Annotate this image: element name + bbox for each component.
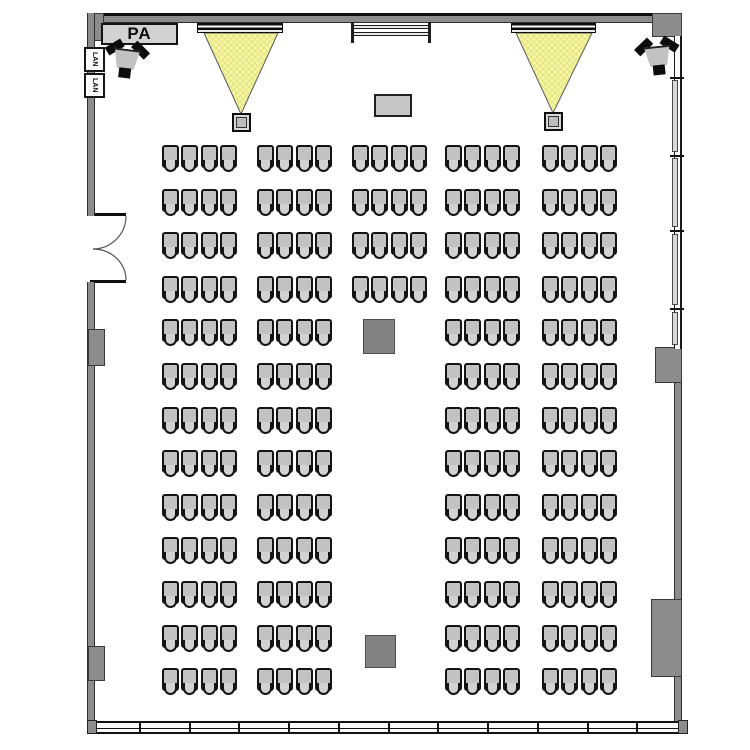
- chair-icon: [296, 494, 313, 521]
- chair-icon: [561, 625, 578, 652]
- seat-group-far-right-row-7: [542, 407, 617, 434]
- seat-group-far-left-row-13: [162, 668, 237, 695]
- chair-icon: [296, 363, 313, 390]
- chair-icon: [315, 276, 332, 303]
- seating-area: [0, 0, 750, 750]
- chair-icon: [561, 189, 578, 216]
- chair-icon: [503, 494, 520, 521]
- seat-group-center-row-2: [352, 189, 427, 216]
- chair-icon: [181, 494, 198, 521]
- seat-group-mid-left-row-2: [257, 189, 332, 216]
- chair-icon: [315, 625, 332, 652]
- chair-icon: [542, 189, 559, 216]
- chair-icon: [162, 232, 179, 259]
- chair-icon: [352, 145, 369, 172]
- chair-icon: [464, 668, 481, 695]
- chair-icon: [296, 276, 313, 303]
- chair-icon: [315, 232, 332, 259]
- chair-icon: [542, 537, 559, 564]
- chair-icon: [315, 145, 332, 172]
- chair-icon: [542, 668, 559, 695]
- chair-icon: [542, 581, 559, 608]
- chair-icon: [600, 494, 617, 521]
- chair-icon: [503, 450, 520, 477]
- chair-icon: [464, 319, 481, 346]
- chair-icon: [561, 537, 578, 564]
- chair-icon: [162, 450, 179, 477]
- chair-icon: [503, 276, 520, 303]
- chair-icon: [484, 232, 501, 259]
- chair-icon: [503, 581, 520, 608]
- chair-icon: [445, 189, 462, 216]
- chair-icon: [600, 537, 617, 564]
- chair-icon: [201, 407, 218, 434]
- chair-icon: [410, 189, 427, 216]
- chair-icon: [581, 450, 598, 477]
- seat-group-far-right-row-6: [542, 363, 617, 390]
- chair-icon: [581, 537, 598, 564]
- chair-icon: [371, 189, 388, 216]
- chair-icon: [257, 581, 274, 608]
- chair-icon: [445, 407, 462, 434]
- chair-icon: [181, 450, 198, 477]
- seat-group-center-row-3: [352, 232, 427, 259]
- seat-group-mid-left-row-3: [257, 232, 332, 259]
- seat-group-mid-right-row-11: [445, 581, 520, 608]
- chair-icon: [220, 537, 237, 564]
- seat-group-mid-left-row-12: [257, 625, 332, 652]
- chair-icon: [162, 363, 179, 390]
- chair-icon: [315, 450, 332, 477]
- chair-icon: [315, 581, 332, 608]
- chair-icon: [220, 494, 237, 521]
- chair-icon: [371, 276, 388, 303]
- seat-group-mid-right-row-13: [445, 668, 520, 695]
- chair-icon: [162, 319, 179, 346]
- chair-icon: [181, 363, 198, 390]
- seat-group-far-right-row-3: [542, 232, 617, 259]
- chair-icon: [276, 363, 293, 390]
- seat-group-mid-left-row-7: [257, 407, 332, 434]
- chair-icon: [561, 450, 578, 477]
- chair-icon: [201, 145, 218, 172]
- seat-group-far-right-row-2: [542, 189, 617, 216]
- chair-icon: [410, 145, 427, 172]
- chair-icon: [162, 537, 179, 564]
- chair-icon: [600, 319, 617, 346]
- chair-icon: [503, 625, 520, 652]
- chair-icon: [581, 232, 598, 259]
- chair-icon: [315, 363, 332, 390]
- chair-icon: [445, 319, 462, 346]
- chair-icon: [352, 276, 369, 303]
- chair-icon: [315, 537, 332, 564]
- chair-icon: [201, 581, 218, 608]
- chair-icon: [201, 450, 218, 477]
- chair-icon: [162, 581, 179, 608]
- chair-icon: [220, 189, 237, 216]
- chair-icon: [162, 145, 179, 172]
- chair-icon: [315, 494, 332, 521]
- chair-icon: [391, 276, 408, 303]
- chair-icon: [600, 450, 617, 477]
- chair-icon: [561, 145, 578, 172]
- chair-icon: [276, 494, 293, 521]
- chair-icon: [561, 363, 578, 390]
- chair-icon: [600, 276, 617, 303]
- seat-group-mid-right-row-7: [445, 407, 520, 434]
- chair-icon: [445, 363, 462, 390]
- chair-icon: [464, 189, 481, 216]
- seat-group-mid-left-row-13: [257, 668, 332, 695]
- seat-group-far-right-row-4: [542, 276, 617, 303]
- chair-icon: [201, 189, 218, 216]
- chair-icon: [464, 494, 481, 521]
- chair-icon: [220, 450, 237, 477]
- chair-icon: [201, 276, 218, 303]
- chair-icon: [296, 319, 313, 346]
- chair-icon: [162, 668, 179, 695]
- chair-icon: [542, 407, 559, 434]
- chair-icon: [503, 668, 520, 695]
- chair-icon: [503, 189, 520, 216]
- chair-icon: [296, 537, 313, 564]
- chair-icon: [371, 145, 388, 172]
- chair-icon: [296, 450, 313, 477]
- chair-icon: [201, 319, 218, 346]
- chair-icon: [484, 189, 501, 216]
- chair-icon: [257, 319, 274, 346]
- chair-icon: [600, 232, 617, 259]
- seat-group-far-right-row-11: [542, 581, 617, 608]
- chair-icon: [181, 581, 198, 608]
- chair-icon: [464, 537, 481, 564]
- chair-icon: [181, 407, 198, 434]
- chair-icon: [445, 668, 462, 695]
- chair-icon: [561, 494, 578, 521]
- chair-icon: [484, 407, 501, 434]
- chair-icon: [410, 276, 427, 303]
- chair-icon: [296, 581, 313, 608]
- chair-icon: [296, 232, 313, 259]
- chair-icon: [201, 494, 218, 521]
- chair-icon: [257, 494, 274, 521]
- chair-icon: [484, 319, 501, 346]
- chair-icon: [352, 232, 369, 259]
- chair-icon: [484, 581, 501, 608]
- chair-icon: [276, 625, 293, 652]
- chair-icon: [581, 668, 598, 695]
- chair-icon: [162, 625, 179, 652]
- chair-icon: [201, 363, 218, 390]
- chair-icon: [257, 276, 274, 303]
- chair-icon: [276, 276, 293, 303]
- chair-icon: [464, 276, 481, 303]
- chair-icon: [484, 145, 501, 172]
- chair-icon: [503, 537, 520, 564]
- chair-icon: [391, 232, 408, 259]
- seat-group-mid-right-row-12: [445, 625, 520, 652]
- chair-icon: [220, 581, 237, 608]
- chair-icon: [484, 276, 501, 303]
- chair-icon: [581, 581, 598, 608]
- chair-icon: [561, 319, 578, 346]
- chair-icon: [276, 232, 293, 259]
- chair-icon: [391, 189, 408, 216]
- chair-icon: [484, 537, 501, 564]
- chair-icon: [484, 450, 501, 477]
- seat-group-mid-right-row-8: [445, 450, 520, 477]
- chair-icon: [464, 450, 481, 477]
- seat-group-far-right-row-10: [542, 537, 617, 564]
- seat-group-center-row-4: [352, 276, 427, 303]
- seat-group-far-right-row-9: [542, 494, 617, 521]
- chair-icon: [464, 581, 481, 608]
- chair-icon: [561, 407, 578, 434]
- chair-icon: [503, 407, 520, 434]
- chair-icon: [220, 668, 237, 695]
- chair-icon: [445, 537, 462, 564]
- chair-icon: [162, 189, 179, 216]
- chair-icon: [484, 494, 501, 521]
- chair-icon: [542, 319, 559, 346]
- seat-group-far-right-row-13: [542, 668, 617, 695]
- seat-group-far-right-row-8: [542, 450, 617, 477]
- seat-group-mid-left-row-5: [257, 319, 332, 346]
- chair-icon: [600, 363, 617, 390]
- seat-group-center-row-1: [352, 145, 427, 172]
- seat-group-mid-right-row-5: [445, 319, 520, 346]
- chair-icon: [561, 232, 578, 259]
- chair-icon: [162, 276, 179, 303]
- chair-icon: [445, 625, 462, 652]
- chair-icon: [542, 450, 559, 477]
- chair-icon: [181, 189, 198, 216]
- floor-plan: PA LAN LAN: [0, 0, 750, 750]
- chair-icon: [600, 625, 617, 652]
- seat-group-far-right-row-1: [542, 145, 617, 172]
- chair-icon: [410, 232, 427, 259]
- chair-icon: [220, 319, 237, 346]
- chair-icon: [296, 189, 313, 216]
- chair-icon: [352, 189, 369, 216]
- chair-icon: [201, 232, 218, 259]
- chair-icon: [542, 276, 559, 303]
- chair-icon: [257, 537, 274, 564]
- seat-group-far-left-row-2: [162, 189, 237, 216]
- chair-icon: [561, 276, 578, 303]
- chair-icon: [464, 145, 481, 172]
- chair-icon: [581, 189, 598, 216]
- chair-icon: [600, 581, 617, 608]
- seat-group-mid-left-row-9: [257, 494, 332, 521]
- chair-icon: [315, 668, 332, 695]
- chair-icon: [220, 145, 237, 172]
- chair-icon: [220, 407, 237, 434]
- chair-icon: [257, 450, 274, 477]
- chair-icon: [181, 276, 198, 303]
- seat-group-far-left-row-7: [162, 407, 237, 434]
- chair-icon: [296, 145, 313, 172]
- chair-icon: [581, 625, 598, 652]
- chair-icon: [162, 494, 179, 521]
- chair-icon: [296, 625, 313, 652]
- chair-icon: [276, 145, 293, 172]
- chair-icon: [257, 189, 274, 216]
- chair-icon: [445, 276, 462, 303]
- seat-group-mid-right-row-2: [445, 189, 520, 216]
- seat-group-far-left-row-3: [162, 232, 237, 259]
- chair-icon: [181, 668, 198, 695]
- seat-group-mid-left-row-4: [257, 276, 332, 303]
- chair-icon: [276, 450, 293, 477]
- chair-icon: [581, 145, 598, 172]
- chair-icon: [581, 319, 598, 346]
- chair-icon: [220, 276, 237, 303]
- chair-icon: [542, 145, 559, 172]
- chair-icon: [181, 232, 198, 259]
- chair-icon: [201, 668, 218, 695]
- chair-icon: [445, 232, 462, 259]
- chair-icon: [503, 145, 520, 172]
- chair-icon: [445, 145, 462, 172]
- seat-group-far-left-row-4: [162, 276, 237, 303]
- seat-group-far-left-row-8: [162, 450, 237, 477]
- seat-group-mid-right-row-10: [445, 537, 520, 564]
- chair-icon: [464, 232, 481, 259]
- chair-icon: [503, 232, 520, 259]
- chair-icon: [315, 319, 332, 346]
- chair-icon: [276, 319, 293, 346]
- chair-icon: [181, 145, 198, 172]
- seat-group-far-left-row-6: [162, 363, 237, 390]
- chair-icon: [220, 232, 237, 259]
- chair-icon: [391, 145, 408, 172]
- seat-group-mid-left-row-11: [257, 581, 332, 608]
- chair-icon: [220, 363, 237, 390]
- chair-icon: [276, 407, 293, 434]
- chair-icon: [600, 668, 617, 695]
- chair-icon: [257, 232, 274, 259]
- seat-group-far-right-row-12: [542, 625, 617, 652]
- chair-icon: [542, 232, 559, 259]
- chair-icon: [503, 319, 520, 346]
- chair-icon: [503, 363, 520, 390]
- seat-group-mid-left-row-6: [257, 363, 332, 390]
- chair-icon: [542, 363, 559, 390]
- chair-icon: [484, 668, 501, 695]
- seat-group-mid-left-row-1: [257, 145, 332, 172]
- chair-icon: [181, 319, 198, 346]
- chair-icon: [201, 537, 218, 564]
- chair-icon: [561, 581, 578, 608]
- chair-icon: [257, 145, 274, 172]
- chair-icon: [445, 450, 462, 477]
- chair-icon: [581, 494, 598, 521]
- seat-group-mid-right-row-4: [445, 276, 520, 303]
- chair-icon: [296, 407, 313, 434]
- chair-icon: [581, 407, 598, 434]
- chair-icon: [257, 407, 274, 434]
- chair-icon: [220, 625, 237, 652]
- seat-group-mid-right-row-3: [445, 232, 520, 259]
- chair-icon: [464, 407, 481, 434]
- seat-group-far-right-row-5: [542, 319, 617, 346]
- chair-icon: [315, 189, 332, 216]
- chair-icon: [371, 232, 388, 259]
- seat-group-far-left-row-12: [162, 625, 237, 652]
- chair-icon: [276, 537, 293, 564]
- seat-group-mid-right-row-1: [445, 145, 520, 172]
- seat-group-far-left-row-10: [162, 537, 237, 564]
- chair-icon: [257, 625, 274, 652]
- chair-icon: [315, 407, 332, 434]
- seat-group-far-left-row-5: [162, 319, 237, 346]
- seat-group-far-left-row-1: [162, 145, 237, 172]
- seat-group-far-left-row-9: [162, 494, 237, 521]
- chair-icon: [276, 668, 293, 695]
- chair-icon: [600, 145, 617, 172]
- chair-icon: [464, 625, 481, 652]
- chair-icon: [445, 494, 462, 521]
- chair-icon: [484, 625, 501, 652]
- chair-icon: [484, 363, 501, 390]
- chair-icon: [581, 363, 598, 390]
- chair-icon: [542, 494, 559, 521]
- chair-icon: [276, 189, 293, 216]
- chair-icon: [201, 625, 218, 652]
- chair-icon: [257, 363, 274, 390]
- chair-icon: [464, 363, 481, 390]
- chair-icon: [181, 537, 198, 564]
- chair-icon: [257, 668, 274, 695]
- seat-group-far-left-row-11: [162, 581, 237, 608]
- seat-group-mid-right-row-9: [445, 494, 520, 521]
- chair-icon: [581, 276, 598, 303]
- chair-icon: [296, 668, 313, 695]
- seat-group-mid-left-row-10: [257, 537, 332, 564]
- chair-icon: [600, 189, 617, 216]
- chair-icon: [181, 625, 198, 652]
- chair-icon: [561, 668, 578, 695]
- seat-group-mid-left-row-8: [257, 450, 332, 477]
- chair-icon: [542, 625, 559, 652]
- chair-icon: [276, 581, 293, 608]
- seat-group-mid-right-row-6: [445, 363, 520, 390]
- chair-icon: [600, 407, 617, 434]
- chair-icon: [162, 407, 179, 434]
- chair-icon: [445, 581, 462, 608]
